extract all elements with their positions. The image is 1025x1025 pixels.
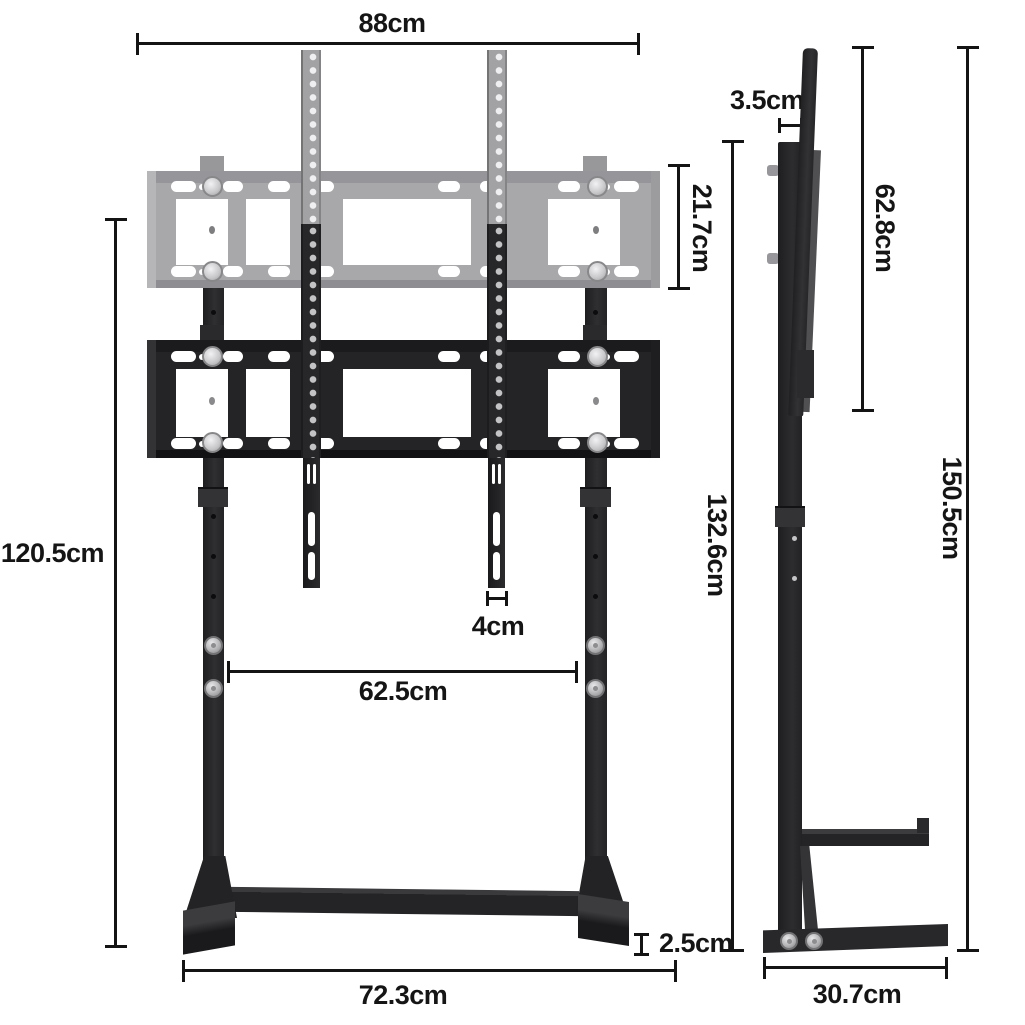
bracket-cutout xyxy=(548,199,620,265)
bar-slot xyxy=(493,512,500,546)
bracket-left-cap xyxy=(147,340,156,458)
bracket-cutout xyxy=(246,199,290,265)
dim-line-top-width xyxy=(136,42,640,45)
mount-screw xyxy=(202,261,223,282)
dim-line-base-depth xyxy=(763,966,948,969)
dim-label-top-width: 88cm xyxy=(358,8,425,39)
dim-line-strip-width xyxy=(486,597,508,600)
slot xyxy=(558,351,580,362)
bracket-plate xyxy=(147,340,660,458)
upright-hole xyxy=(211,514,216,519)
vesa-strip-right xyxy=(487,224,507,458)
ghost-bracket-top-rail xyxy=(147,171,660,183)
slot xyxy=(268,266,290,277)
dim-label-foot-thickness: 2.5cm xyxy=(659,928,733,959)
plate-hole xyxy=(209,397,215,405)
dim-line-bracket-height xyxy=(677,164,680,290)
plate-hole xyxy=(593,226,599,234)
ghost-vesa-strip-left xyxy=(301,50,321,224)
bar-slot xyxy=(308,512,315,546)
bar-notch xyxy=(492,464,495,484)
bracket-top-rail xyxy=(147,340,660,352)
slot xyxy=(171,438,196,449)
post-hole xyxy=(792,536,797,541)
slot xyxy=(558,438,580,449)
upright-hole xyxy=(593,594,598,599)
ghost-bracket-bottom-edge xyxy=(147,280,660,288)
dimension-diagram: 88cm 120.5cm 21.7cm xyxy=(0,0,1025,1025)
dim-line-foot-thickness xyxy=(640,933,643,956)
adjust-knob xyxy=(586,679,605,698)
slot xyxy=(268,351,290,362)
mount-screw xyxy=(587,261,608,282)
mount-screw xyxy=(587,432,608,453)
bar-notch xyxy=(498,464,501,484)
slot xyxy=(614,181,639,192)
bracket-cutout xyxy=(176,369,228,437)
dim-label-upright-spacing: 62.5cm xyxy=(359,676,448,707)
right-height-adjust-collar xyxy=(580,487,611,507)
dim-line-overall-height-front xyxy=(114,218,117,948)
bracket-right-cap xyxy=(651,340,660,458)
slot xyxy=(223,351,243,362)
dim-label-plate-height: 62.8cm xyxy=(869,184,900,273)
plate-hole xyxy=(209,226,215,234)
slot xyxy=(268,181,290,192)
bracket-cutout xyxy=(343,369,471,437)
slot xyxy=(438,266,460,277)
dim-label-base-width: 72.3cm xyxy=(359,980,448,1011)
slot xyxy=(171,266,196,277)
left-height-adjust-collar xyxy=(198,487,228,507)
vesa-bar-end-right xyxy=(488,458,505,588)
upright-hole xyxy=(211,594,216,599)
vesa-strip-left xyxy=(301,224,321,458)
slot xyxy=(614,351,639,362)
dim-label-post-depth: 3.5cm xyxy=(730,85,804,116)
side-strut xyxy=(800,846,818,930)
upright-hole xyxy=(211,554,216,559)
bar-notch xyxy=(313,464,316,484)
slot xyxy=(171,181,196,192)
slot xyxy=(558,266,580,277)
slot xyxy=(614,438,639,449)
dim-line-plate-height xyxy=(861,46,864,412)
side-adjust-collar xyxy=(775,506,805,527)
upright-hole xyxy=(593,554,598,559)
post-hole xyxy=(792,576,797,581)
upright-hole xyxy=(593,514,598,519)
dim-label-stand-height: 132.6cm xyxy=(701,493,732,596)
bar-slot xyxy=(493,552,500,580)
dim-label-strip-width: 4cm xyxy=(472,611,525,642)
dim-label-base-depth: 30.7cm xyxy=(813,979,902,1010)
mount-screw xyxy=(202,346,223,367)
ghost-bracket-right-cap xyxy=(651,171,660,288)
mount-screw xyxy=(202,432,223,453)
upright-hole xyxy=(593,310,598,315)
ghost-bracket-plate xyxy=(147,171,660,288)
slot xyxy=(223,266,243,277)
plate-hole xyxy=(593,397,599,405)
slot xyxy=(438,181,460,192)
side-shelf xyxy=(802,829,929,846)
mount-screw xyxy=(587,176,608,197)
mount-screw xyxy=(202,176,223,197)
bracket-cutout xyxy=(343,199,471,265)
left-foot-pad xyxy=(183,901,235,954)
dim-label-total-height: 150.5cm xyxy=(936,456,967,559)
bar-slot xyxy=(308,552,315,580)
slot xyxy=(268,438,290,449)
ghost-bracket-left-cap xyxy=(147,171,156,288)
dim-label-bracket-height: 21.7cm xyxy=(686,184,717,273)
mount-screw xyxy=(587,346,608,367)
vesa-bar-end-left xyxy=(303,458,320,588)
adjust-knob xyxy=(204,636,223,655)
bracket-cutout xyxy=(246,369,290,437)
dim-line-base-width xyxy=(182,969,677,972)
side-bracket-hook xyxy=(797,350,814,398)
side-shelf-lip xyxy=(917,818,929,833)
slot xyxy=(223,438,243,449)
slot xyxy=(171,351,196,362)
leveling-foot xyxy=(805,932,823,950)
bracket-cutout xyxy=(548,369,620,437)
slot xyxy=(558,181,580,192)
upright-hole xyxy=(211,310,216,315)
adjust-knob xyxy=(586,636,605,655)
slot xyxy=(614,266,639,277)
slot xyxy=(223,181,243,192)
leveling-foot xyxy=(780,932,798,950)
bar-notch xyxy=(307,464,310,484)
base-crossbar xyxy=(229,887,579,916)
dim-line-upright-spacing xyxy=(227,670,578,673)
slot xyxy=(438,351,460,362)
adjust-knob xyxy=(204,679,223,698)
bracket-bottom-edge xyxy=(147,450,660,458)
dim-label-overall-height-front: 120.5cm xyxy=(0,538,104,569)
ghost-vesa-strip-right xyxy=(487,50,507,224)
right-foot-pad xyxy=(578,894,629,946)
slot xyxy=(438,438,460,449)
bracket-cutout xyxy=(176,199,228,265)
